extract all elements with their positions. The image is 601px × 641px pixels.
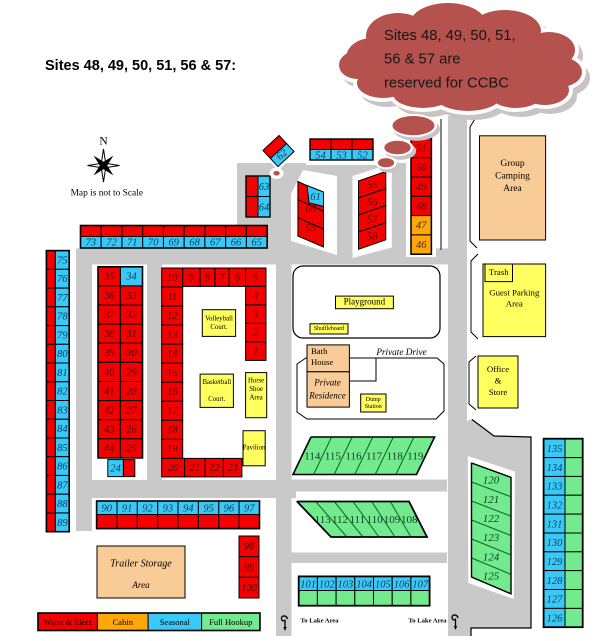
svg-text:25: 25 [126,444,137,455]
svg-text:89: 89 [57,518,68,529]
svg-text:86: 86 [57,462,68,473]
svg-text:118: 118 [387,451,404,463]
svg-text:29: 29 [126,367,137,378]
svg-text:43: 43 [104,425,115,436]
svg-text:121: 121 [483,494,500,506]
svg-text:Group: Group [500,159,525,169]
svg-text:66: 66 [231,238,242,249]
svg-text:31: 31 [125,329,137,340]
svg-text:65: 65 [252,238,263,249]
svg-text:117: 117 [366,451,383,463]
svg-text:37: 37 [103,310,115,321]
svg-text:12: 12 [167,311,178,322]
svg-text:50: 50 [416,163,427,174]
svg-text:33: 33 [125,291,137,302]
svg-text:116: 116 [345,451,362,463]
svg-text:26: 26 [126,425,137,436]
svg-text:78: 78 [57,312,68,323]
svg-text:83: 83 [57,405,68,416]
svg-text:56 & 57 are: 56 & 57 are [384,52,461,68]
svg-text:80: 80 [57,349,68,360]
svg-text:73: 73 [86,238,97,249]
svg-text:6: 6 [235,273,241,284]
svg-text:To Lake Area: To Lake Area [301,618,340,625]
svg-text:69: 69 [169,238,180,249]
svg-text:57: 57 [367,214,378,225]
svg-text:1: 1 [253,347,258,358]
svg-text:55: 55 [367,180,378,191]
svg-text:125: 125 [483,571,500,583]
svg-text:100: 100 [241,583,258,594]
svg-text:Area: Area [249,394,262,401]
svg-text:114: 114 [304,451,321,463]
svg-text:13: 13 [167,330,178,341]
svg-text:Area: Area [506,299,523,309]
svg-text:Horse: Horse [248,377,264,384]
svg-text:64: 64 [259,203,270,214]
svg-text:103: 103 [338,579,354,590]
svg-text:119: 119 [407,451,424,463]
svg-text:44: 44 [104,444,115,455]
svg-text:76: 76 [57,274,68,285]
svg-text:19: 19 [167,444,178,455]
svg-text:5: 5 [253,273,258,284]
svg-text:105: 105 [375,579,391,590]
svg-text:61: 61 [310,192,321,203]
svg-text:131: 131 [547,519,563,530]
svg-text:59: 59 [305,223,316,234]
svg-text:Pavilion: Pavilion [243,445,266,452]
svg-text:92: 92 [142,504,153,515]
svg-text:107: 107 [412,579,429,590]
svg-text:Map is not to Scale: Map is not to Scale [71,189,143,199]
svg-text:51: 51 [416,143,427,154]
svg-text:Shoe: Shoe [249,386,263,393]
svg-text:Office: Office [487,364,509,374]
svg-text:10: 10 [167,273,178,284]
svg-text:95: 95 [203,504,214,515]
svg-text:63: 63 [259,182,270,193]
svg-text:115: 115 [325,451,342,463]
svg-text:60: 60 [305,204,316,215]
svg-text:81: 81 [57,368,68,379]
svg-text:N: N [99,136,108,148]
svg-text:79: 79 [57,330,68,341]
svg-text:67: 67 [210,238,221,249]
svg-text:96: 96 [224,504,235,515]
svg-text:106: 106 [394,579,411,590]
svg-text:Area: Area [131,580,150,590]
svg-text:Full Hookup: Full Hookup [209,617,252,627]
svg-text:32: 32 [125,310,137,321]
svg-text:Dump: Dump [366,397,381,403]
svg-text:Playground: Playground [344,297,386,307]
svg-text:Trash: Trash [489,267,509,277]
svg-text:93: 93 [163,504,174,515]
svg-text:36: 36 [103,291,115,302]
svg-text:85: 85 [57,443,68,454]
svg-text:Sites 48, 49, 50, 51,: Sites 48, 49, 50, 51, [384,28,516,44]
svg-text:reserved for CCBC: reserved for CCBC [384,75,509,91]
svg-text:Guest Parking: Guest Parking [489,288,540,298]
svg-text:134: 134 [547,463,564,474]
svg-text:77: 77 [57,293,68,304]
svg-text:27: 27 [126,406,137,417]
svg-text:135: 135 [547,444,563,455]
svg-text:72: 72 [106,238,117,249]
svg-text:123: 123 [483,532,500,544]
svg-text:111: 111 [349,514,365,526]
svg-text:11: 11 [167,292,177,303]
svg-text:Court.: Court. [210,324,227,331]
svg-text:47: 47 [416,221,427,232]
svg-text:40: 40 [104,367,115,378]
svg-text:99: 99 [244,562,255,573]
svg-text:17: 17 [167,406,178,417]
svg-text:30: 30 [125,348,137,359]
svg-text:124: 124 [483,551,500,563]
svg-text:Shuffleboard: Shuffleboard [314,325,344,332]
svg-text:Area: Area [503,184,522,194]
svg-text:133: 133 [547,482,563,493]
svg-text:70: 70 [148,238,159,249]
svg-text:Basketball: Basketball [202,379,231,386]
svg-text:22: 22 [209,463,220,474]
svg-text:104: 104 [356,579,373,590]
svg-text:Court.: Court. [208,396,225,403]
svg-text:82: 82 [57,387,68,398]
svg-text:120: 120 [483,475,500,487]
svg-text:15: 15 [167,368,178,379]
svg-text:Cabin: Cabin [113,617,134,627]
svg-text:94: 94 [183,504,194,515]
svg-text:87: 87 [57,480,68,491]
svg-text:35: 35 [103,272,115,283]
svg-text:88: 88 [57,499,68,510]
svg-text:48: 48 [416,201,427,212]
svg-text:41: 41 [104,386,115,397]
svg-text:Sites 48, 49, 50, 51, 56 & 57:: Sites 48, 49, 50, 51, 56 & 57: [45,58,236,74]
svg-text:129: 129 [547,557,564,568]
svg-text:68: 68 [189,238,200,249]
svg-text:56: 56 [367,197,378,208]
svg-text:91: 91 [122,504,133,515]
svg-text:49: 49 [416,182,427,193]
svg-text:34: 34 [125,272,137,283]
svg-text:122: 122 [483,513,500,525]
svg-text:9: 9 [189,273,195,284]
svg-text:Volleyball: Volleyball [205,315,233,322]
svg-text:39: 39 [103,348,115,359]
svg-text:Water & Elect: Water & Elect [43,617,92,627]
svg-text:46: 46 [416,240,427,251]
svg-text:24: 24 [110,464,121,475]
svg-text:Private Drive: Private Drive [375,347,426,357]
svg-text:Private: Private [313,378,341,388]
svg-text:84: 84 [57,424,68,435]
svg-text:75: 75 [57,256,68,267]
svg-text:20: 20 [168,463,179,474]
svg-text:Seasonal: Seasonal [160,617,191,627]
svg-text:128: 128 [547,576,564,587]
svg-text:16: 16 [167,387,178,398]
svg-text:Trailer Storage: Trailer Storage [110,559,172,570]
svg-text:House: House [311,357,333,367]
svg-text:2: 2 [253,328,259,339]
svg-text:127: 127 [547,595,564,606]
svg-text:102: 102 [319,579,336,590]
svg-text:Bath: Bath [311,346,328,356]
svg-text:23: 23 [227,463,238,474]
svg-text:90: 90 [102,504,113,515]
svg-text:To Lake Area: To Lake Area [409,618,448,625]
svg-text:101: 101 [300,579,316,590]
svg-text:Residence: Residence [308,391,345,401]
svg-text:3: 3 [252,310,258,321]
svg-text:97: 97 [244,504,255,515]
svg-text:98: 98 [244,542,255,553]
svg-text:18: 18 [167,425,178,436]
svg-text:8: 8 [205,273,211,284]
svg-text:71: 71 [127,238,138,249]
svg-text:130: 130 [547,538,564,549]
svg-text:&: & [495,376,502,386]
svg-text:21: 21 [190,463,201,474]
svg-text:14: 14 [167,349,178,360]
svg-text:28: 28 [126,386,137,397]
svg-text:58: 58 [367,231,378,242]
svg-text:38: 38 [103,329,115,340]
svg-text:Camping: Camping [495,171,530,181]
svg-text:7: 7 [219,273,225,284]
svg-text:126: 126 [547,614,564,625]
svg-text:Station: Station [365,404,382,410]
svg-text:Store: Store [489,387,508,397]
svg-text:132: 132 [547,501,564,512]
svg-text:42: 42 [104,406,115,417]
svg-text:4: 4 [253,291,259,302]
